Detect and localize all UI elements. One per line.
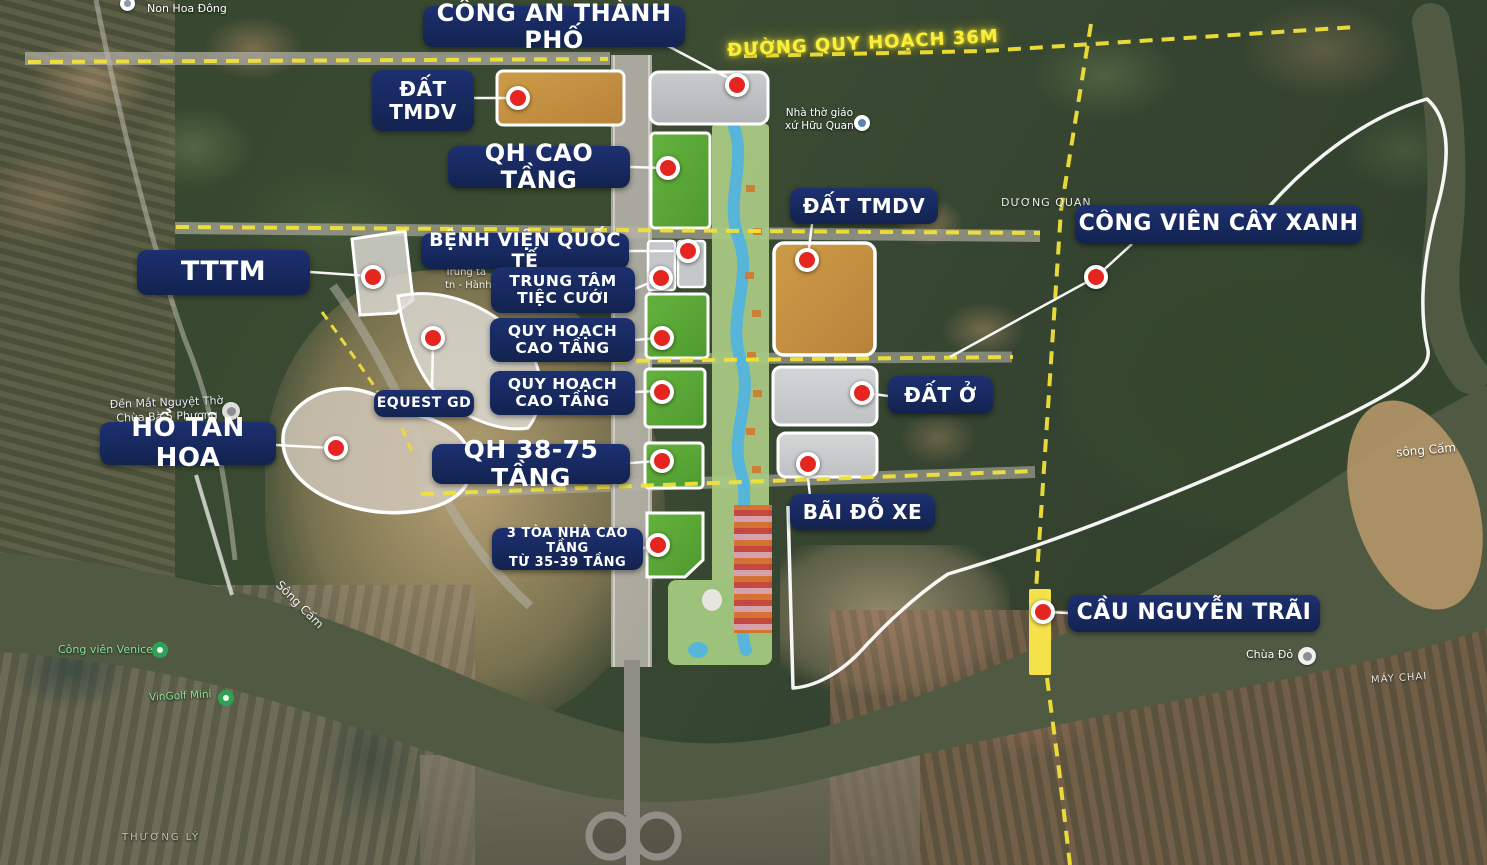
- river-tributary: [1431, 22, 1470, 375]
- label-dat-tmdv-right: ĐẤT TMDV: [790, 188, 938, 224]
- parcel-cong-an: [650, 72, 768, 124]
- park-icon: [152, 642, 168, 658]
- map-text-line: tn - Hành: [445, 279, 492, 292]
- label-cau-nguyen-trai: CẦU NGUYỄN TRÃI: [1068, 595, 1320, 632]
- label-text: CAO TẦNG: [515, 393, 609, 410]
- label-text: TMDV: [389, 101, 457, 123]
- label-qh-cao-tang: QH CAO TẦNG: [448, 146, 630, 188]
- label-bai-do-xe: BÃI ĐỖ XE: [790, 494, 935, 530]
- golf-icon: [218, 690, 234, 706]
- label-text: ĐẤT: [399, 78, 446, 100]
- marker-dot-3-toa: [646, 533, 670, 557]
- master-plan-map: Non Hoa Đông Nhà thờ giáo xứ Hữu Quan DƯ…: [0, 0, 1487, 865]
- label-trung-tam-tiec-cuoi: TRUNG TÂM TIỆC CƯỚI: [491, 267, 635, 313]
- label-equest-gd: EQUEST GD: [374, 390, 474, 417]
- label-text: TTTM: [181, 257, 266, 287]
- label-tttm: TTTM: [137, 250, 310, 295]
- parcel-dat-tmdv-right: [774, 243, 875, 355]
- label-text: EQUEST GD: [377, 396, 472, 412]
- label-text: CÔNG VIÊN CÂY XANH: [1079, 212, 1359, 237]
- marker-dot-quy-hoach-2: [650, 380, 674, 404]
- label-qh-38-75-tang: QH 38-75 TẦNG: [432, 444, 630, 484]
- marker-dot-cong-vien: [1084, 265, 1108, 289]
- marker-dot-qh-cao-tang: [656, 156, 680, 180]
- label-text: CẦU NGUYỄN TRÃI: [1077, 601, 1312, 626]
- map-text-thuong-ly: THƯƠNG LÝ: [122, 832, 200, 843]
- church-icon: [854, 115, 870, 131]
- marker-dot-quy-hoach-1: [650, 326, 674, 350]
- marker-dot-tiec-cuoi: [649, 266, 673, 290]
- marker-dot-dat-o: [850, 381, 874, 405]
- marker-dot-tttm: [361, 265, 385, 289]
- oval-building: [702, 589, 722, 611]
- label-text: QUY HOẠCH: [508, 323, 617, 340]
- label-dat-o: ĐẤT Ở: [888, 376, 993, 414]
- label-text: QH CAO TẦNG: [448, 140, 630, 194]
- label-text: BỆNH VIỆN QUỐC TẾ: [421, 230, 629, 273]
- marker-dot-equest: [421, 326, 445, 350]
- map-text-chua-do: Chùa Đỏ: [1246, 648, 1293, 661]
- bridge-loop-west: [589, 815, 631, 857]
- map-text-nha-tho: Nhà thờ giáo xứ Hữu Quan: [785, 107, 854, 133]
- label-benh-vien-quoc-te: BỆNH VIỆN QUỐC TẾ: [421, 233, 629, 269]
- label-text: TRUNG TÂM: [509, 273, 616, 290]
- map-text-line: Nhà thờ giáo: [785, 107, 854, 120]
- label-text: CÔNG AN THÀNH PHỐ: [423, 0, 685, 53]
- label-text: 3 TÒA NHÀ CAO TẦNG: [492, 527, 643, 556]
- label-text: QH 38-75 TẦNG: [432, 436, 630, 492]
- row-houses-strip: [734, 505, 772, 633]
- marker-dot-benh-vien: [676, 239, 700, 263]
- label-text: TỪ 35-39 TẦNG: [509, 556, 626, 571]
- label-quy-hoach-cao-tang-2: QUY HOẠCH CAO TẦNG: [490, 371, 635, 415]
- label-text: ĐẤT TMDV: [803, 195, 925, 217]
- label-cong-vien-cay-xanh: CÔNG VIÊN CÂY XANH: [1075, 205, 1362, 244]
- bridge-south-stem: [626, 808, 640, 865]
- pagoda-icon: [1298, 647, 1316, 665]
- marker-dot-ho-tan-hoa: [324, 436, 348, 460]
- pond: [688, 642, 708, 658]
- map-text-non-hoa-dong: Non Hoa Đông: [147, 2, 227, 15]
- marker-dot-cong-an: [725, 73, 749, 97]
- label-text: QUY HOẠCH: [508, 376, 617, 393]
- marker-dot-dat-tmdv-left: [506, 86, 530, 110]
- map-text-cong-vien-venice: Công viên Venice: [58, 643, 153, 656]
- marker-dot-bai-do-xe: [796, 452, 820, 476]
- bridge-loop-east: [636, 815, 678, 857]
- existing-bridge: [624, 660, 640, 815]
- label-text: ĐẤT Ở: [904, 384, 977, 406]
- parcel-qh-cao-tang: [651, 133, 710, 228]
- map-text-line: xứ Hữu Quan: [785, 120, 854, 133]
- label-dat-tmdv-left: ĐẤT TMDV: [372, 70, 474, 131]
- marker-dot-qh-38-75: [650, 449, 674, 473]
- label-text: CAO TẦNG: [515, 340, 609, 357]
- label-text: TIỆC CƯỚI: [517, 290, 609, 307]
- label-quy-hoach-cao-tang-1: QUY HOẠCH CAO TẦNG: [490, 318, 635, 362]
- parcel-bai-do-xe: [778, 433, 877, 477]
- marker-dot-cau-nguyen-trai: [1031, 600, 1055, 624]
- label-text: HỒ TÂN HOA: [100, 414, 276, 472]
- label-text: BÃI ĐỖ XE: [803, 501, 922, 523]
- label-cong-an-thanh-pho: CÔNG AN THÀNH PHỐ: [423, 6, 685, 47]
- label-ho-tan-hoa: HỒ TÂN HOA: [100, 422, 276, 465]
- marker-dot-dat-tmdv-right: [795, 248, 819, 272]
- label-3-toa-nha: 3 TÒA NHÀ CAO TẦNG TỪ 35-39 TẦNG: [492, 528, 643, 570]
